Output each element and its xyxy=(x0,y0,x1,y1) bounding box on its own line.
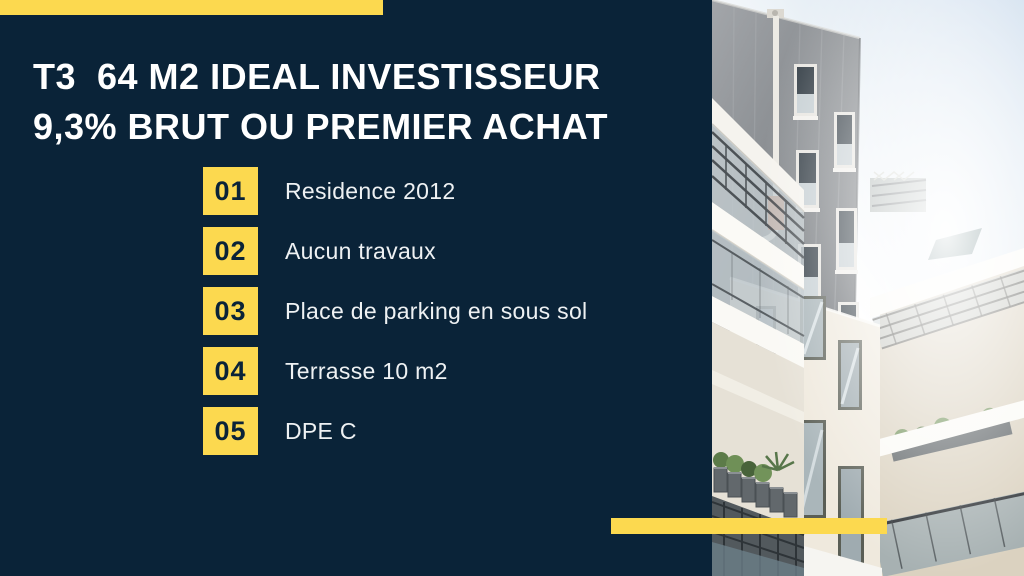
slide-title: T3 64 M2 IDEAL INVESTISSEUR 9,3% BRUT OU… xyxy=(33,52,608,152)
feature-row-5: 05 DPE C xyxy=(203,407,587,455)
feature-label: Aucun travaux xyxy=(285,238,436,265)
top-accent-bar xyxy=(0,0,383,15)
property-photo xyxy=(712,0,1024,576)
sun-glare xyxy=(712,0,1024,576)
feature-number-badge: 03 xyxy=(203,287,258,335)
feature-number-badge: 01 xyxy=(203,167,258,215)
feature-label: Place de parking en sous sol xyxy=(285,298,587,325)
feature-row-3: 03 Place de parking en sous sol xyxy=(203,287,587,335)
feature-number-badge: 05 xyxy=(203,407,258,455)
real-estate-slide: T3 64 M2 IDEAL INVESTISSEUR 9,3% BRUT OU… xyxy=(0,0,1024,576)
feature-label: DPE C xyxy=(285,418,357,445)
feature-number-badge: 02 xyxy=(203,227,258,275)
title-line-2: 9,3% BRUT OU PREMIER ACHAT xyxy=(33,102,608,152)
feature-label: Terrasse 10 m2 xyxy=(285,358,448,385)
feature-row-1: 01 Residence 2012 xyxy=(203,167,587,215)
title-line-1: T3 64 M2 IDEAL INVESTISSEUR xyxy=(33,52,608,102)
feature-row-4: 04 Terrasse 10 m2 xyxy=(203,347,587,395)
feature-label: Residence 2012 xyxy=(285,178,455,205)
bottom-accent-bar xyxy=(611,518,887,534)
feature-list: 01 Residence 2012 02 Aucun travaux 03 Pl… xyxy=(203,167,587,455)
feature-number-badge: 04 xyxy=(203,347,258,395)
feature-row-2: 02 Aucun travaux xyxy=(203,227,587,275)
